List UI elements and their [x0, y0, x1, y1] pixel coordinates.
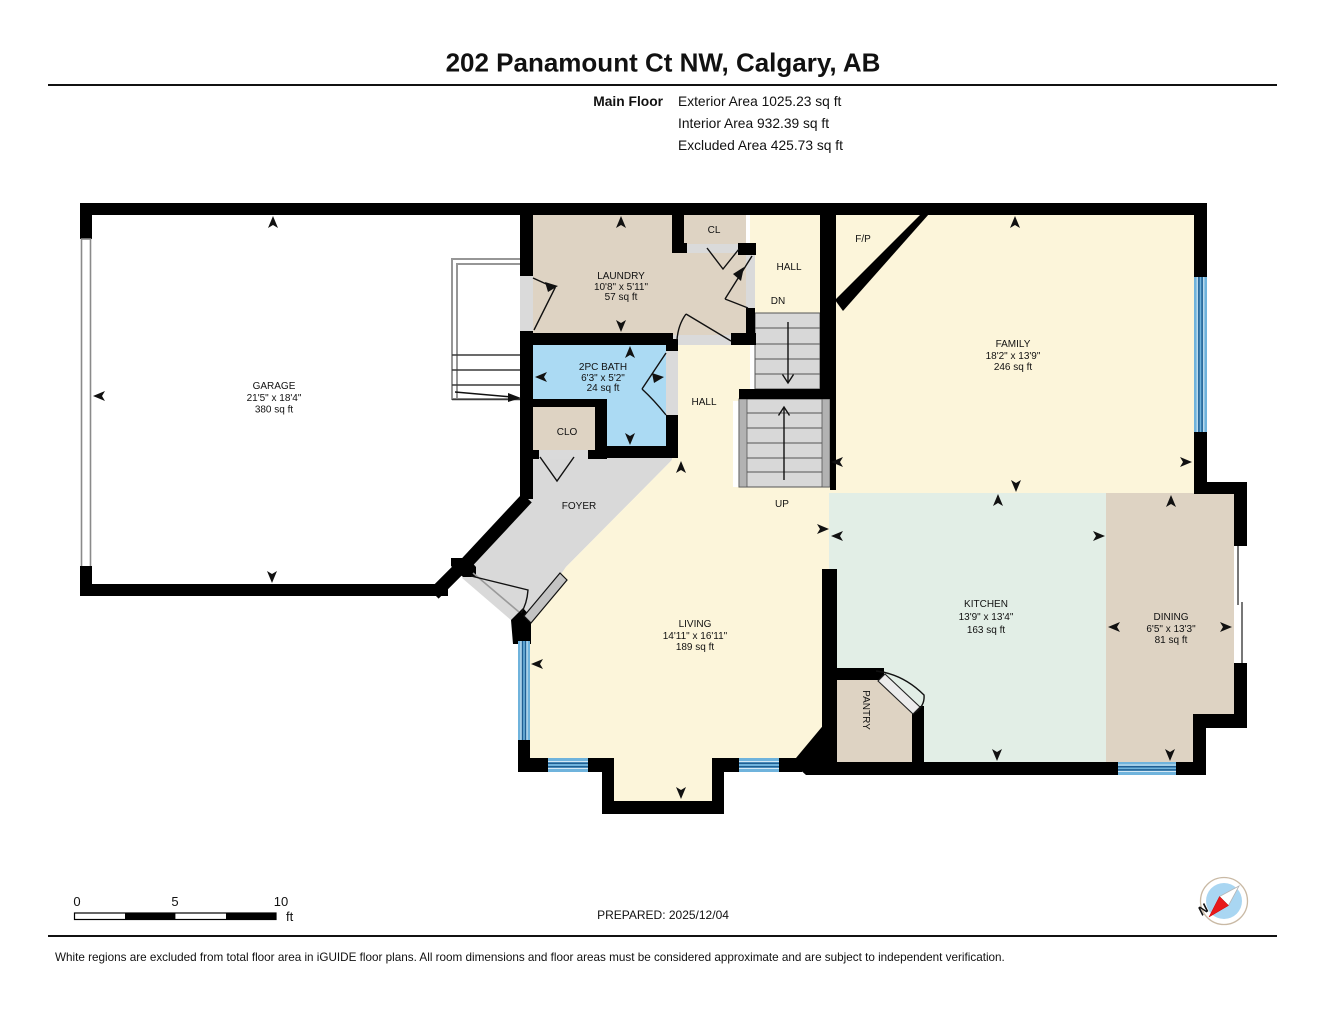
- svg-text:0: 0: [73, 894, 80, 909]
- svg-text:UP: UP: [775, 499, 789, 510]
- svg-text:380 sq ft: 380 sq ft: [255, 405, 294, 416]
- svg-text:LAUNDRY: LAUNDRY: [597, 271, 645, 282]
- svg-text:18'2" x 13'9": 18'2" x 13'9": [986, 351, 1041, 362]
- svg-text:DINING: DINING: [1154, 612, 1189, 623]
- svg-text:CL: CL: [708, 225, 721, 236]
- svg-text:F/P: F/P: [855, 234, 871, 245]
- svg-text:24 sq ft: 24 sq ft: [587, 383, 620, 394]
- svg-text:ft: ft: [286, 909, 294, 924]
- svg-text:10: 10: [274, 894, 288, 909]
- svg-text:6'5" x 13'3": 6'5" x 13'3": [1146, 624, 1196, 635]
- svg-text:163 sq ft: 163 sq ft: [967, 625, 1006, 636]
- svg-text:FAMILY: FAMILY: [996, 339, 1031, 350]
- svg-text:Main Floor: Main Floor: [593, 94, 663, 109]
- svg-text:HALL: HALL: [691, 397, 716, 408]
- svg-text:LIVING: LIVING: [679, 619, 712, 630]
- svg-text:PREPARED: 2025/12/04: PREPARED: 2025/12/04: [597, 908, 729, 922]
- svg-text:HALL: HALL: [776, 262, 801, 273]
- svg-text:White regions are excluded fro: White regions are excluded from total fl…: [55, 951, 1005, 964]
- svg-text:57 sq ft: 57 sq ft: [605, 292, 638, 303]
- svg-text:FOYER: FOYER: [562, 501, 596, 512]
- svg-text:5: 5: [171, 894, 178, 909]
- svg-text:2PC BATH: 2PC BATH: [579, 362, 627, 373]
- svg-text:PANTRY: PANTRY: [860, 690, 871, 730]
- svg-text:GARAGE: GARAGE: [253, 381, 296, 392]
- svg-text:81 sq ft: 81 sq ft: [1155, 635, 1188, 646]
- svg-text:DN: DN: [771, 296, 785, 307]
- svg-text:Interior Area 932.39 sq ft: Interior Area 932.39 sq ft: [678, 116, 829, 131]
- svg-text:13'9" x 13'4": 13'9" x 13'4": [959, 612, 1014, 623]
- svg-text:189 sq ft: 189 sq ft: [676, 642, 715, 653]
- svg-text:KITCHEN: KITCHEN: [964, 599, 1008, 610]
- svg-text:246 sq ft: 246 sq ft: [994, 362, 1033, 373]
- svg-text:Exterior Area 1025.23 sq ft: Exterior Area 1025.23 sq ft: [678, 94, 842, 109]
- svg-text:202 Panamount Ct NW, Calgary,: 202 Panamount Ct NW, Calgary, AB: [446, 48, 881, 78]
- svg-text:CLO: CLO: [557, 427, 578, 438]
- svg-text:21'5" x 18'4": 21'5" x 18'4": [247, 393, 302, 404]
- svg-text:Excluded Area 425.73 sq ft: Excluded Area 425.73 sq ft: [678, 138, 843, 153]
- svg-text:14'11" x 16'11": 14'11" x 16'11": [663, 631, 728, 642]
